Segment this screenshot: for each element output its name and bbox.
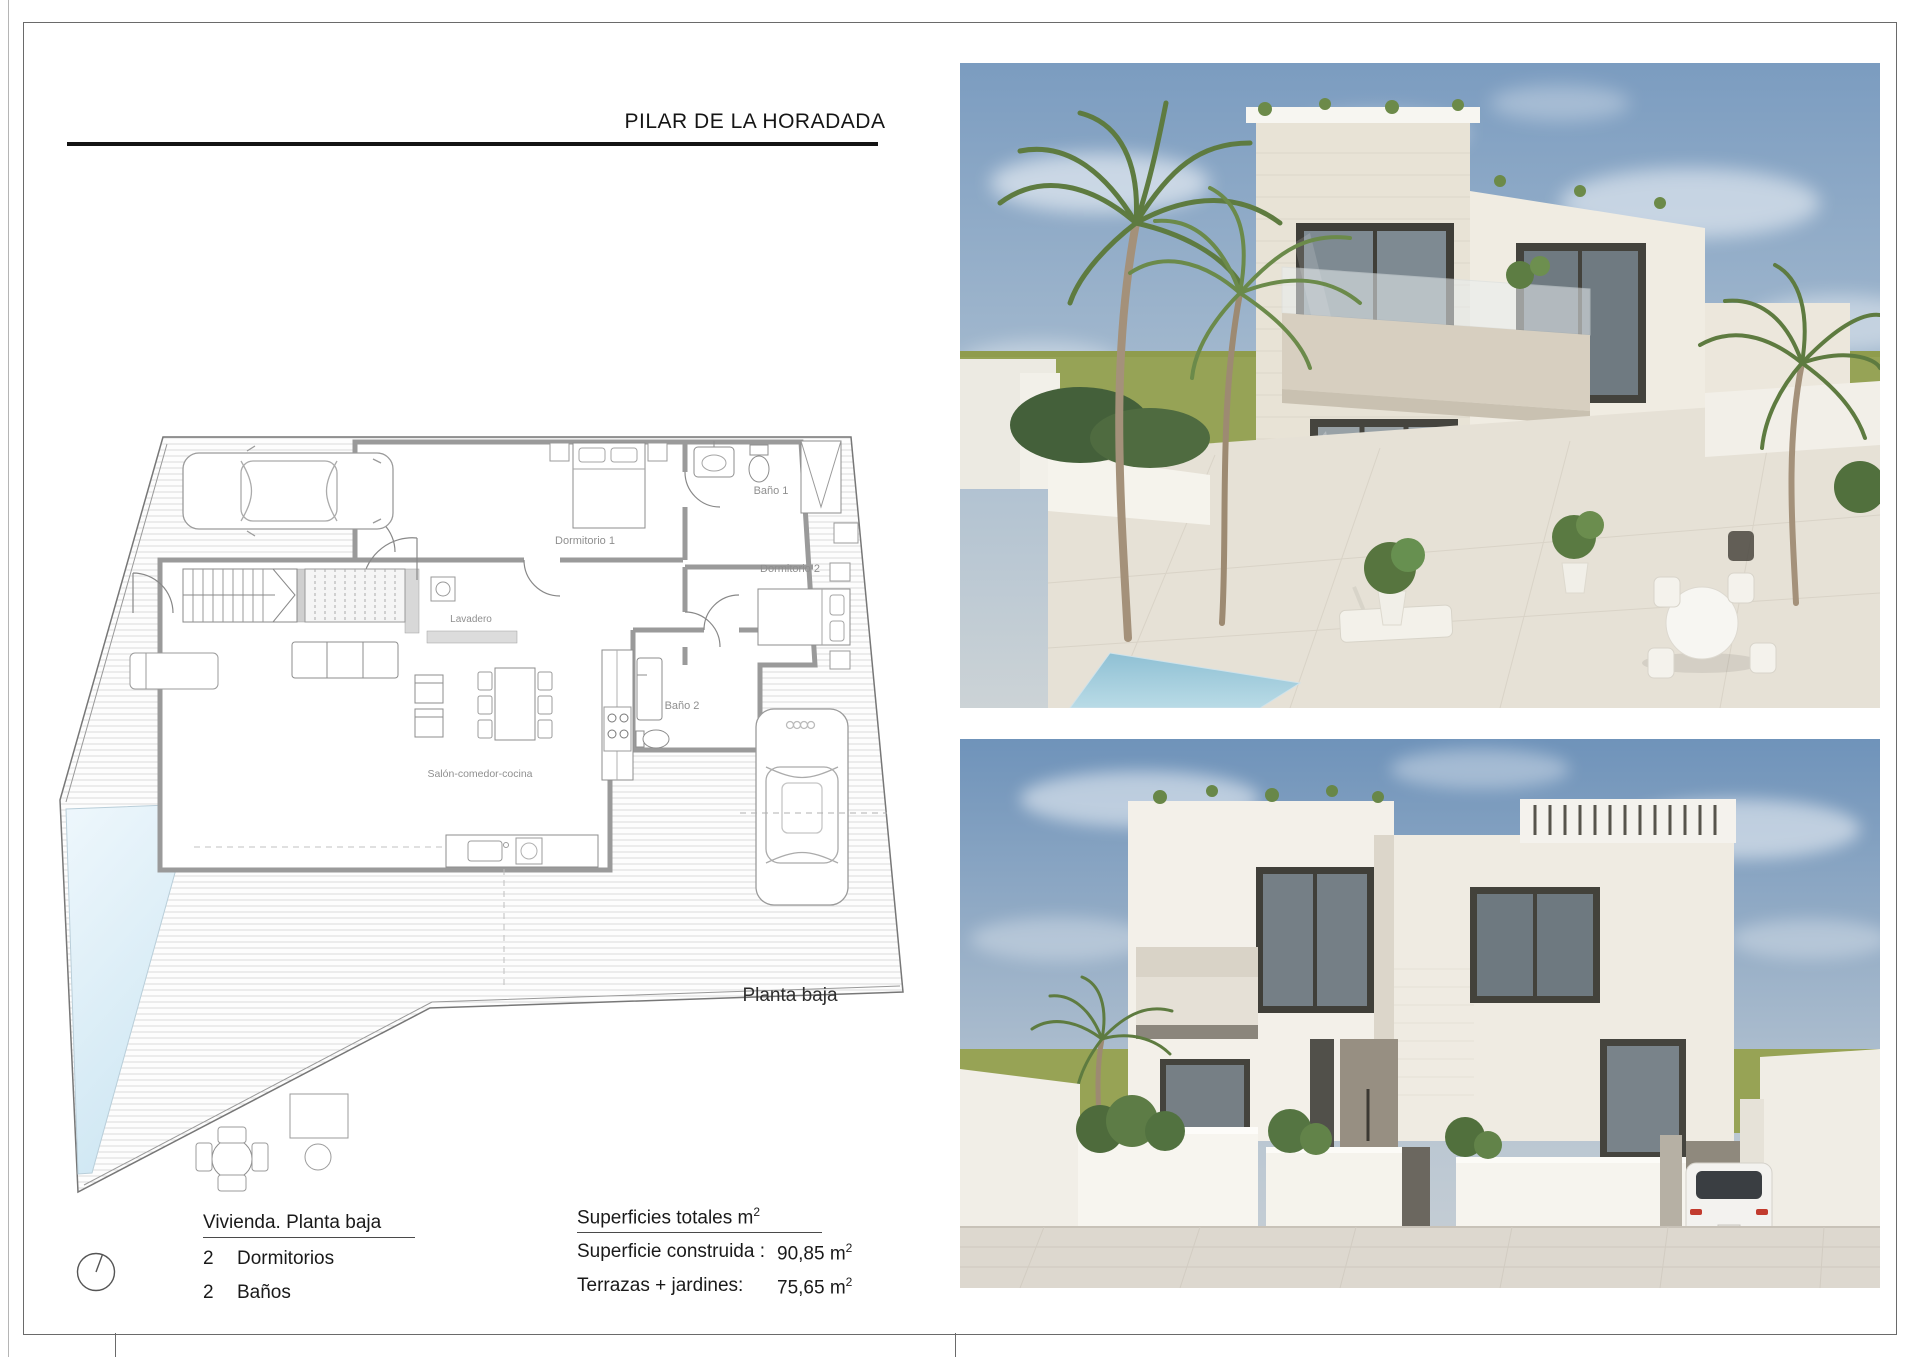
- round-table-set: [196, 1127, 268, 1191]
- ac-unit: [834, 523, 858, 543]
- compass-icon: [74, 1250, 118, 1294]
- room-label-dormitorio1: Dormitorio 1: [555, 535, 615, 547]
- room-label-bano1: Baño 1: [754, 485, 789, 497]
- sun-lounger: [130, 653, 218, 689]
- surfaces-title-sup: 2: [753, 1205, 760, 1219]
- room-label-lavadero: Lavadero: [450, 614, 492, 625]
- dormitorios-count: 2: [203, 1248, 237, 1270]
- washer: [431, 577, 455, 601]
- stairs: [183, 569, 405, 622]
- render-exterior-front: [960, 739, 1880, 1288]
- surfaces-row-terrazas: Terrazas + jardines: 75,65 m2: [577, 1275, 852, 1299]
- title-underline: [67, 142, 878, 146]
- dormitorios-label: Dormitorios: [237, 1248, 334, 1270]
- car-driveway: [756, 709, 848, 905]
- terrazas-value: 75,65 m2: [777, 1275, 852, 1299]
- dwelling-row-banos: 2 Baños: [203, 1282, 291, 1304]
- render-exterior-perspective: [960, 63, 1880, 708]
- surfaces-row-construida: Superficie construida : 90,85 m2: [577, 1241, 852, 1265]
- surfaces-title-text: Superficies totales m2: [577, 1205, 822, 1233]
- construida-value: 90,85 m2: [777, 1241, 852, 1265]
- construida-value-num: 90,85 m: [777, 1243, 846, 1264]
- page-title: PILAR DE LA HORADADA: [520, 110, 990, 134]
- surfaces-section-title: Superficies totales m2: [577, 1205, 822, 1233]
- terrazas-value-sup: 2: [846, 1275, 853, 1289]
- construida-value-sup: 2: [846, 1241, 853, 1255]
- dwelling-row-dormitorios: 2 Dormitorios: [203, 1248, 334, 1270]
- plan-caption: Planta baja: [742, 985, 838, 1006]
- room-label-dormitorio2: Dormitorio 2: [760, 563, 820, 575]
- upper-window-left: [1256, 867, 1374, 1013]
- balcony-left: [1136, 947, 1258, 1039]
- titleblock-tick-mid: [955, 1333, 956, 1357]
- dining-table: [478, 668, 552, 740]
- pavement: [960, 1227, 1880, 1288]
- terrazas-label: Terrazas + jardines:: [577, 1275, 777, 1299]
- terrazas-value-num: 75,65 m: [777, 1277, 846, 1298]
- surfaces-title-label: Superficies totales m: [577, 1207, 753, 1228]
- townhouse-building: [1128, 785, 1736, 1185]
- floor-plan: Dormitorio 1 Baño 1 Dormitorio 2 Lavader…: [44, 417, 924, 1217]
- dwelling-section-title: Vivienda. Planta baja: [203, 1212, 415, 1238]
- room-label-salon: Salón-comedor-cocina: [427, 768, 532, 780]
- page-edge-line: [8, 0, 9, 1357]
- titleblock-tick-left: [115, 1333, 116, 1357]
- upper-window-right: [1470, 887, 1600, 1003]
- sheet: PILAR DE LA HORADADA: [0, 0, 1920, 1357]
- construida-label: Superficie construida :: [577, 1241, 777, 1265]
- room-label-bano2: Baño 2: [665, 700, 700, 712]
- car-carport: [183, 446, 393, 536]
- dwelling-title-text: Vivienda. Planta baja: [203, 1212, 415, 1238]
- banos-count: 2: [203, 1282, 237, 1304]
- banos-label: Baños: [237, 1282, 291, 1304]
- terrace-table-set: [290, 1094, 348, 1170]
